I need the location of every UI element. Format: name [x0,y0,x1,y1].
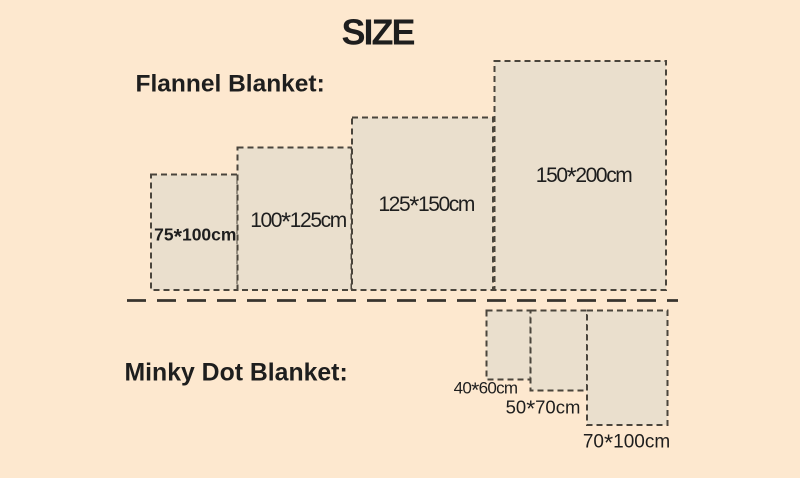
svg-text:Minky Dot Blanket:: Minky Dot Blanket: [125,360,348,387]
svg-text:SIZE: SIZE [341,12,414,53]
svg-text:150*200cm: 150*200cm [536,161,633,191]
svg-text:50*70cm: 50*70cm [506,396,581,422]
svg-text:125*150cm: 125*150cm [378,190,475,220]
svg-text:Flannel Blanket:: Flannel Blanket: [136,71,325,98]
svg-text:70*100cm: 70*100cm [583,430,670,456]
svg-text:100*125cm: 100*125cm [250,206,347,236]
